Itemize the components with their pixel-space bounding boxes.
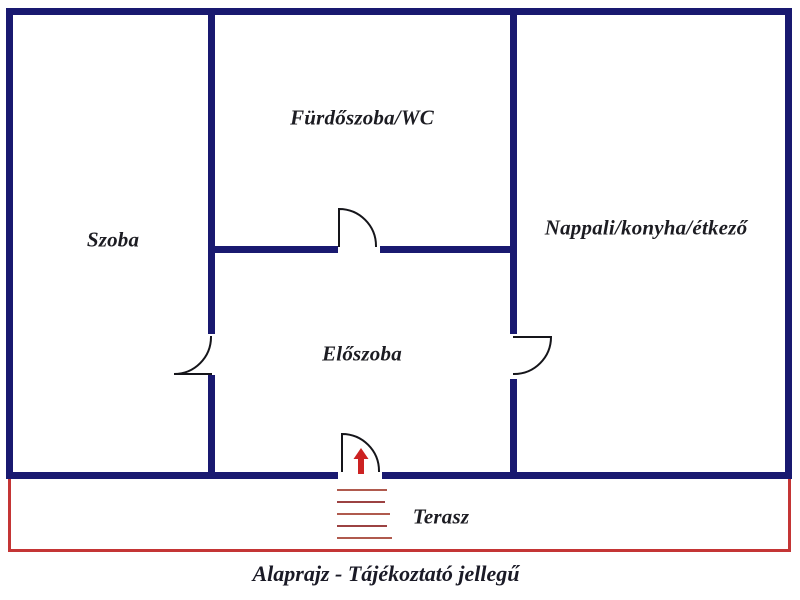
floor-plan: Szoba Fürdőszoba/WC Nappali/konyha/étkez… (0, 0, 800, 600)
room-label-nappali: Nappali/konyha/étkező (545, 216, 748, 241)
door-arc-szoba (174, 337, 211, 374)
room-label-szoba: Szoba (87, 228, 139, 253)
door-arc-bathroom (339, 209, 376, 246)
room-label-eloszoba: Előszoba (322, 342, 402, 367)
door-arc-nappali (514, 337, 551, 374)
room-label-terasz: Terasz (413, 505, 469, 530)
room-label-furdoszoba: Fürdőszoba/WC (290, 106, 434, 131)
plan-caption: Alaprajz - Tájékoztató jellegű (252, 561, 519, 587)
door-symbols-overlay (0, 0, 800, 600)
